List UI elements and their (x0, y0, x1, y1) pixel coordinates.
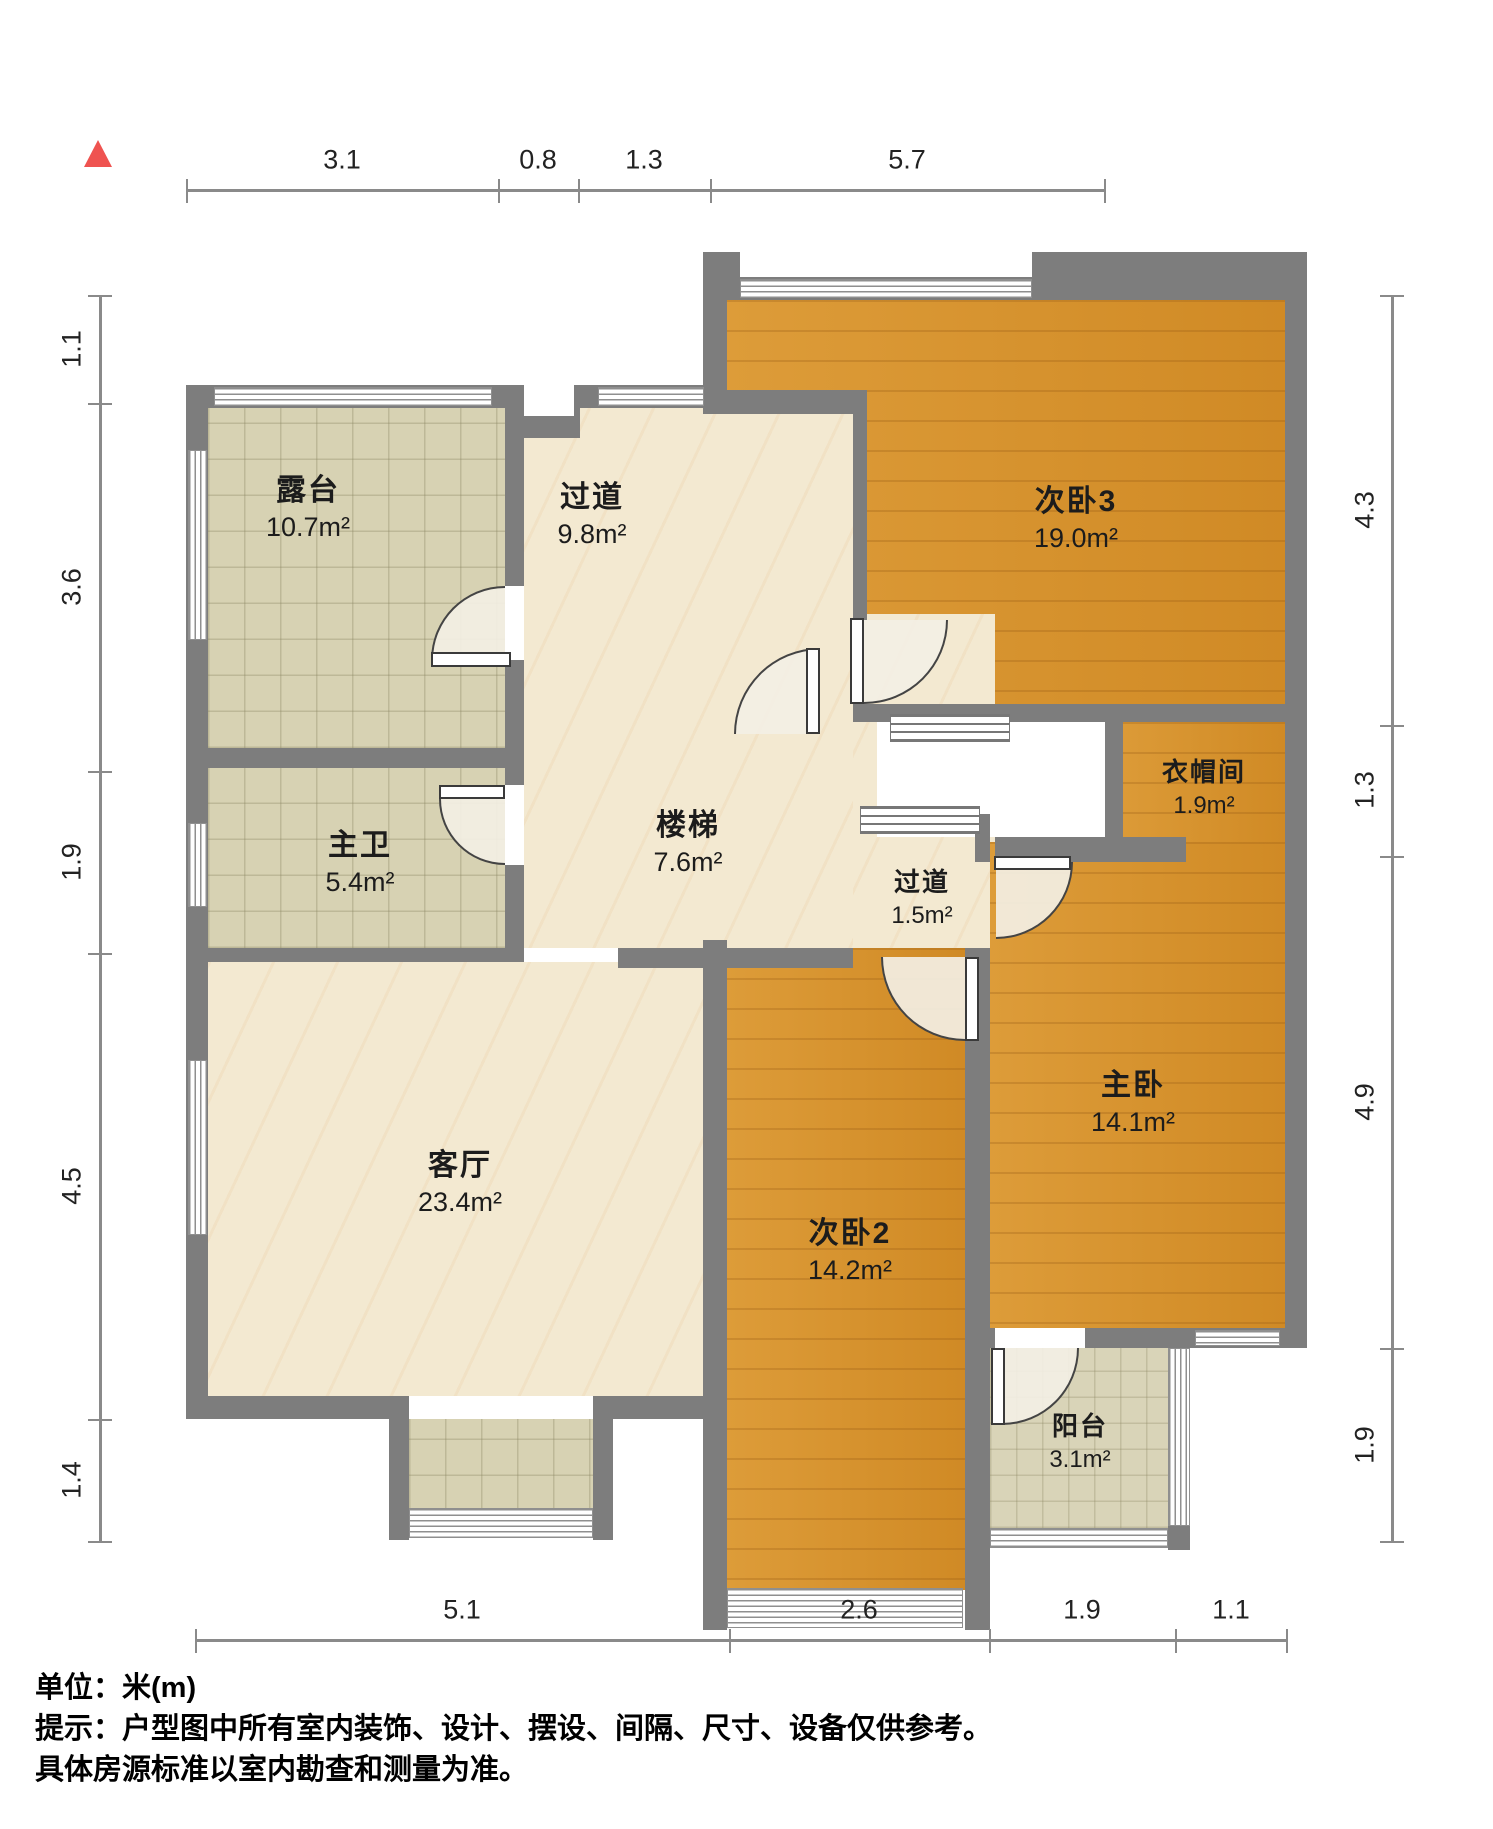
room-label-master-bath: 主卫 5.4m² (325, 820, 394, 898)
wall (965, 1328, 995, 1348)
window (1168, 1348, 1190, 1526)
wall (186, 948, 524, 962)
room-label-stairs: 楼梯 7.6m² (653, 800, 722, 878)
footer-disclaimer: 单位：米(m) 提示：户型图中所有室内装饰、设计、摆设、间隔、尺寸、设备仅供参考… (35, 1668, 992, 1791)
room-name: 次卧3 (1034, 476, 1118, 520)
room-name: 衣帽间 (1162, 752, 1246, 789)
dim-label: 0.8 (519, 145, 557, 176)
dim-label: 1.3 (625, 145, 663, 176)
floor-bay-window (409, 1419, 593, 1512)
wall (505, 865, 524, 948)
window (409, 1508, 593, 1538)
wall (505, 408, 524, 586)
room-area: 14.2m² (808, 1255, 892, 1286)
door-leaf-bedroom3 (850, 618, 864, 704)
room-name: 客厅 (418, 1140, 502, 1184)
wall (853, 414, 867, 620)
room-label-hallway: 过道 1.5m² (891, 862, 952, 930)
door-leaf-master (994, 856, 1071, 870)
wall (593, 1419, 613, 1540)
room-name: 次卧2 (808, 1208, 892, 1252)
wall (505, 660, 524, 785)
footer-tip-line2: 具体房源标准以室内勘查和测量为准。 (35, 1750, 992, 1791)
window (188, 450, 207, 640)
door-leaf-terrace (431, 652, 511, 667)
door-leaf-bedroom2 (965, 957, 979, 1041)
dim-label: 1.9 (1350, 1426, 1381, 1464)
dim-label: 3.1 (323, 145, 361, 176)
dim-label: 4.9 (1350, 1083, 1381, 1121)
window (214, 387, 492, 406)
room-area: 19.0m² (1034, 523, 1118, 554)
stair-rail (860, 806, 980, 834)
room-area: 7.6m² (653, 847, 722, 878)
door-leaf-balcony (991, 1348, 1005, 1425)
window (188, 1060, 207, 1235)
window (598, 387, 704, 406)
wall (186, 1396, 409, 1419)
room-name: 过道 (891, 862, 952, 899)
room-name: 主卧 (1091, 1060, 1175, 1104)
room-label-bedroom3: 次卧3 19.0m² (1034, 476, 1118, 554)
wall (1032, 252, 1307, 300)
wall (965, 948, 990, 1630)
wall (703, 940, 727, 1630)
room-label-bedroom2: 次卧2 14.2m² (808, 1208, 892, 1286)
room-label-balcony: 阳台 3.1m² (1049, 1406, 1110, 1474)
room-area: 10.7m² (266, 512, 350, 543)
wall (1105, 716, 1123, 842)
room-label-living: 客厅 23.4m² (418, 1140, 502, 1218)
room-area: 3.1m² (1049, 1446, 1110, 1474)
window (990, 1528, 1168, 1548)
wall (1168, 1526, 1190, 1550)
window (188, 823, 207, 907)
footer-tip-line1: 提示：户型图中所有室内装饰、设计、摆设、间隔、尺寸、设备仅供参考。 (35, 1709, 992, 1750)
wall (593, 1396, 727, 1419)
wall (389, 1419, 409, 1540)
window (1195, 1330, 1280, 1346)
room-name: 楼梯 (653, 800, 722, 844)
window (740, 279, 1032, 298)
dim-label: 1.1 (1212, 1595, 1250, 1626)
room-name: 阳台 (1049, 1406, 1110, 1443)
stair-rail (890, 714, 1010, 742)
floor-plan: 露台 10.7m² 过道 9.8m² 次卧3 19.0m² 主卫 5.4m² 楼… (0, 0, 1493, 1829)
dim-label: 4.5 (57, 1167, 88, 1205)
room-label-closet: 衣帽间 1.9m² (1162, 752, 1246, 820)
wall (703, 390, 867, 414)
wall (727, 252, 740, 300)
wall (186, 748, 524, 768)
room-area: 23.4m² (418, 1187, 502, 1218)
dim-label: 5.7 (888, 145, 926, 176)
wall (618, 948, 853, 968)
dim-label: 4.3 (1350, 491, 1381, 529)
room-area: 14.1m² (1091, 1107, 1175, 1138)
wall-notch (524, 385, 574, 416)
footer-unit-line: 单位：米(m) (35, 1668, 992, 1709)
dim-label: 5.1 (443, 1595, 481, 1626)
door-leaf-stairs (806, 648, 820, 734)
dim-label: 1.3 (1350, 771, 1381, 809)
room-area: 9.8m² (557, 519, 626, 550)
room-area: 5.4m² (325, 867, 394, 898)
door-leaf-master-bath (439, 785, 505, 799)
dim-label: 1.1 (57, 330, 88, 368)
dim-label: 1.9 (1063, 1595, 1101, 1626)
room-area: 1.5m² (891, 902, 952, 930)
dim-label: 1.9 (57, 843, 88, 881)
floor-terrace (208, 408, 505, 748)
wall (1285, 252, 1307, 1348)
room-name: 过道 (557, 472, 626, 516)
dim-label: 2.6 (840, 1595, 878, 1626)
dim-label: 1.4 (57, 1461, 88, 1499)
dim-label: 3.6 (57, 568, 88, 606)
north-compass-icon (84, 140, 112, 167)
room-name: 露台 (266, 465, 350, 509)
room-label-corridor: 过道 9.8m² (557, 472, 626, 550)
room-label-terrace: 露台 10.7m² (266, 465, 350, 543)
room-area: 1.9m² (1162, 792, 1246, 820)
room-name: 主卫 (325, 820, 394, 864)
room-label-master: 主卧 14.1m² (1091, 1060, 1175, 1138)
